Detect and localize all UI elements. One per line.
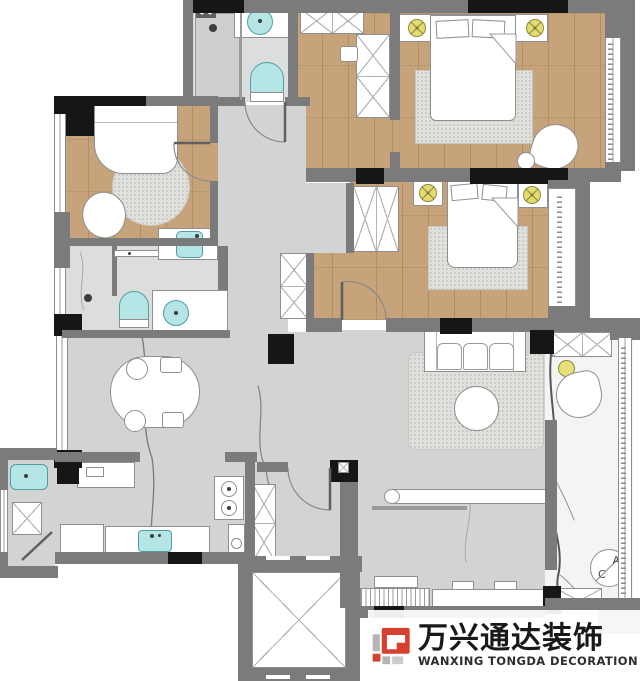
door-swings-overlay: [0, 0, 640, 681]
brand-name-chinese: 万兴通达装饰: [418, 624, 638, 654]
brand-watermark: 万兴通达装饰 WANXING TONGDA DECORATION: [368, 610, 640, 681]
brand-name-english: WANXING TONGDA DECORATION: [418, 656, 638, 668]
brand-logo-icon: [372, 616, 411, 676]
floor-plan: A C: [0, 0, 640, 681]
